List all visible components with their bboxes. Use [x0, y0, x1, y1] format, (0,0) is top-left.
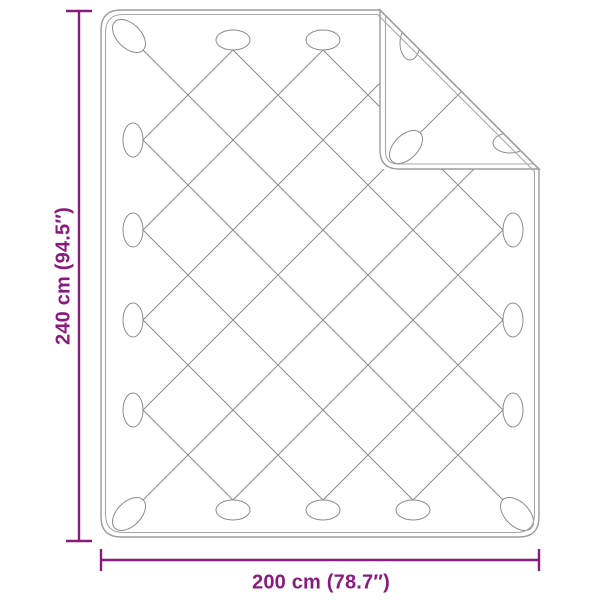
- blanket-inner-seam: [106, 15, 535, 533]
- height-dimension-label: 240 cm (94.5″): [53, 207, 76, 345]
- width-dimension-label: 200 cm (78.7″): [252, 572, 390, 595]
- blanket-dimension-diagram: 240 cm (94.5″) 200 cm (78.7″): [0, 0, 600, 600]
- blanket-outline: [101, 10, 539, 537]
- quilt-pattern: [106, 13, 539, 536]
- width-dimension-line: [101, 549, 539, 571]
- blanket-diagram-canvas: [0, 0, 600, 600]
